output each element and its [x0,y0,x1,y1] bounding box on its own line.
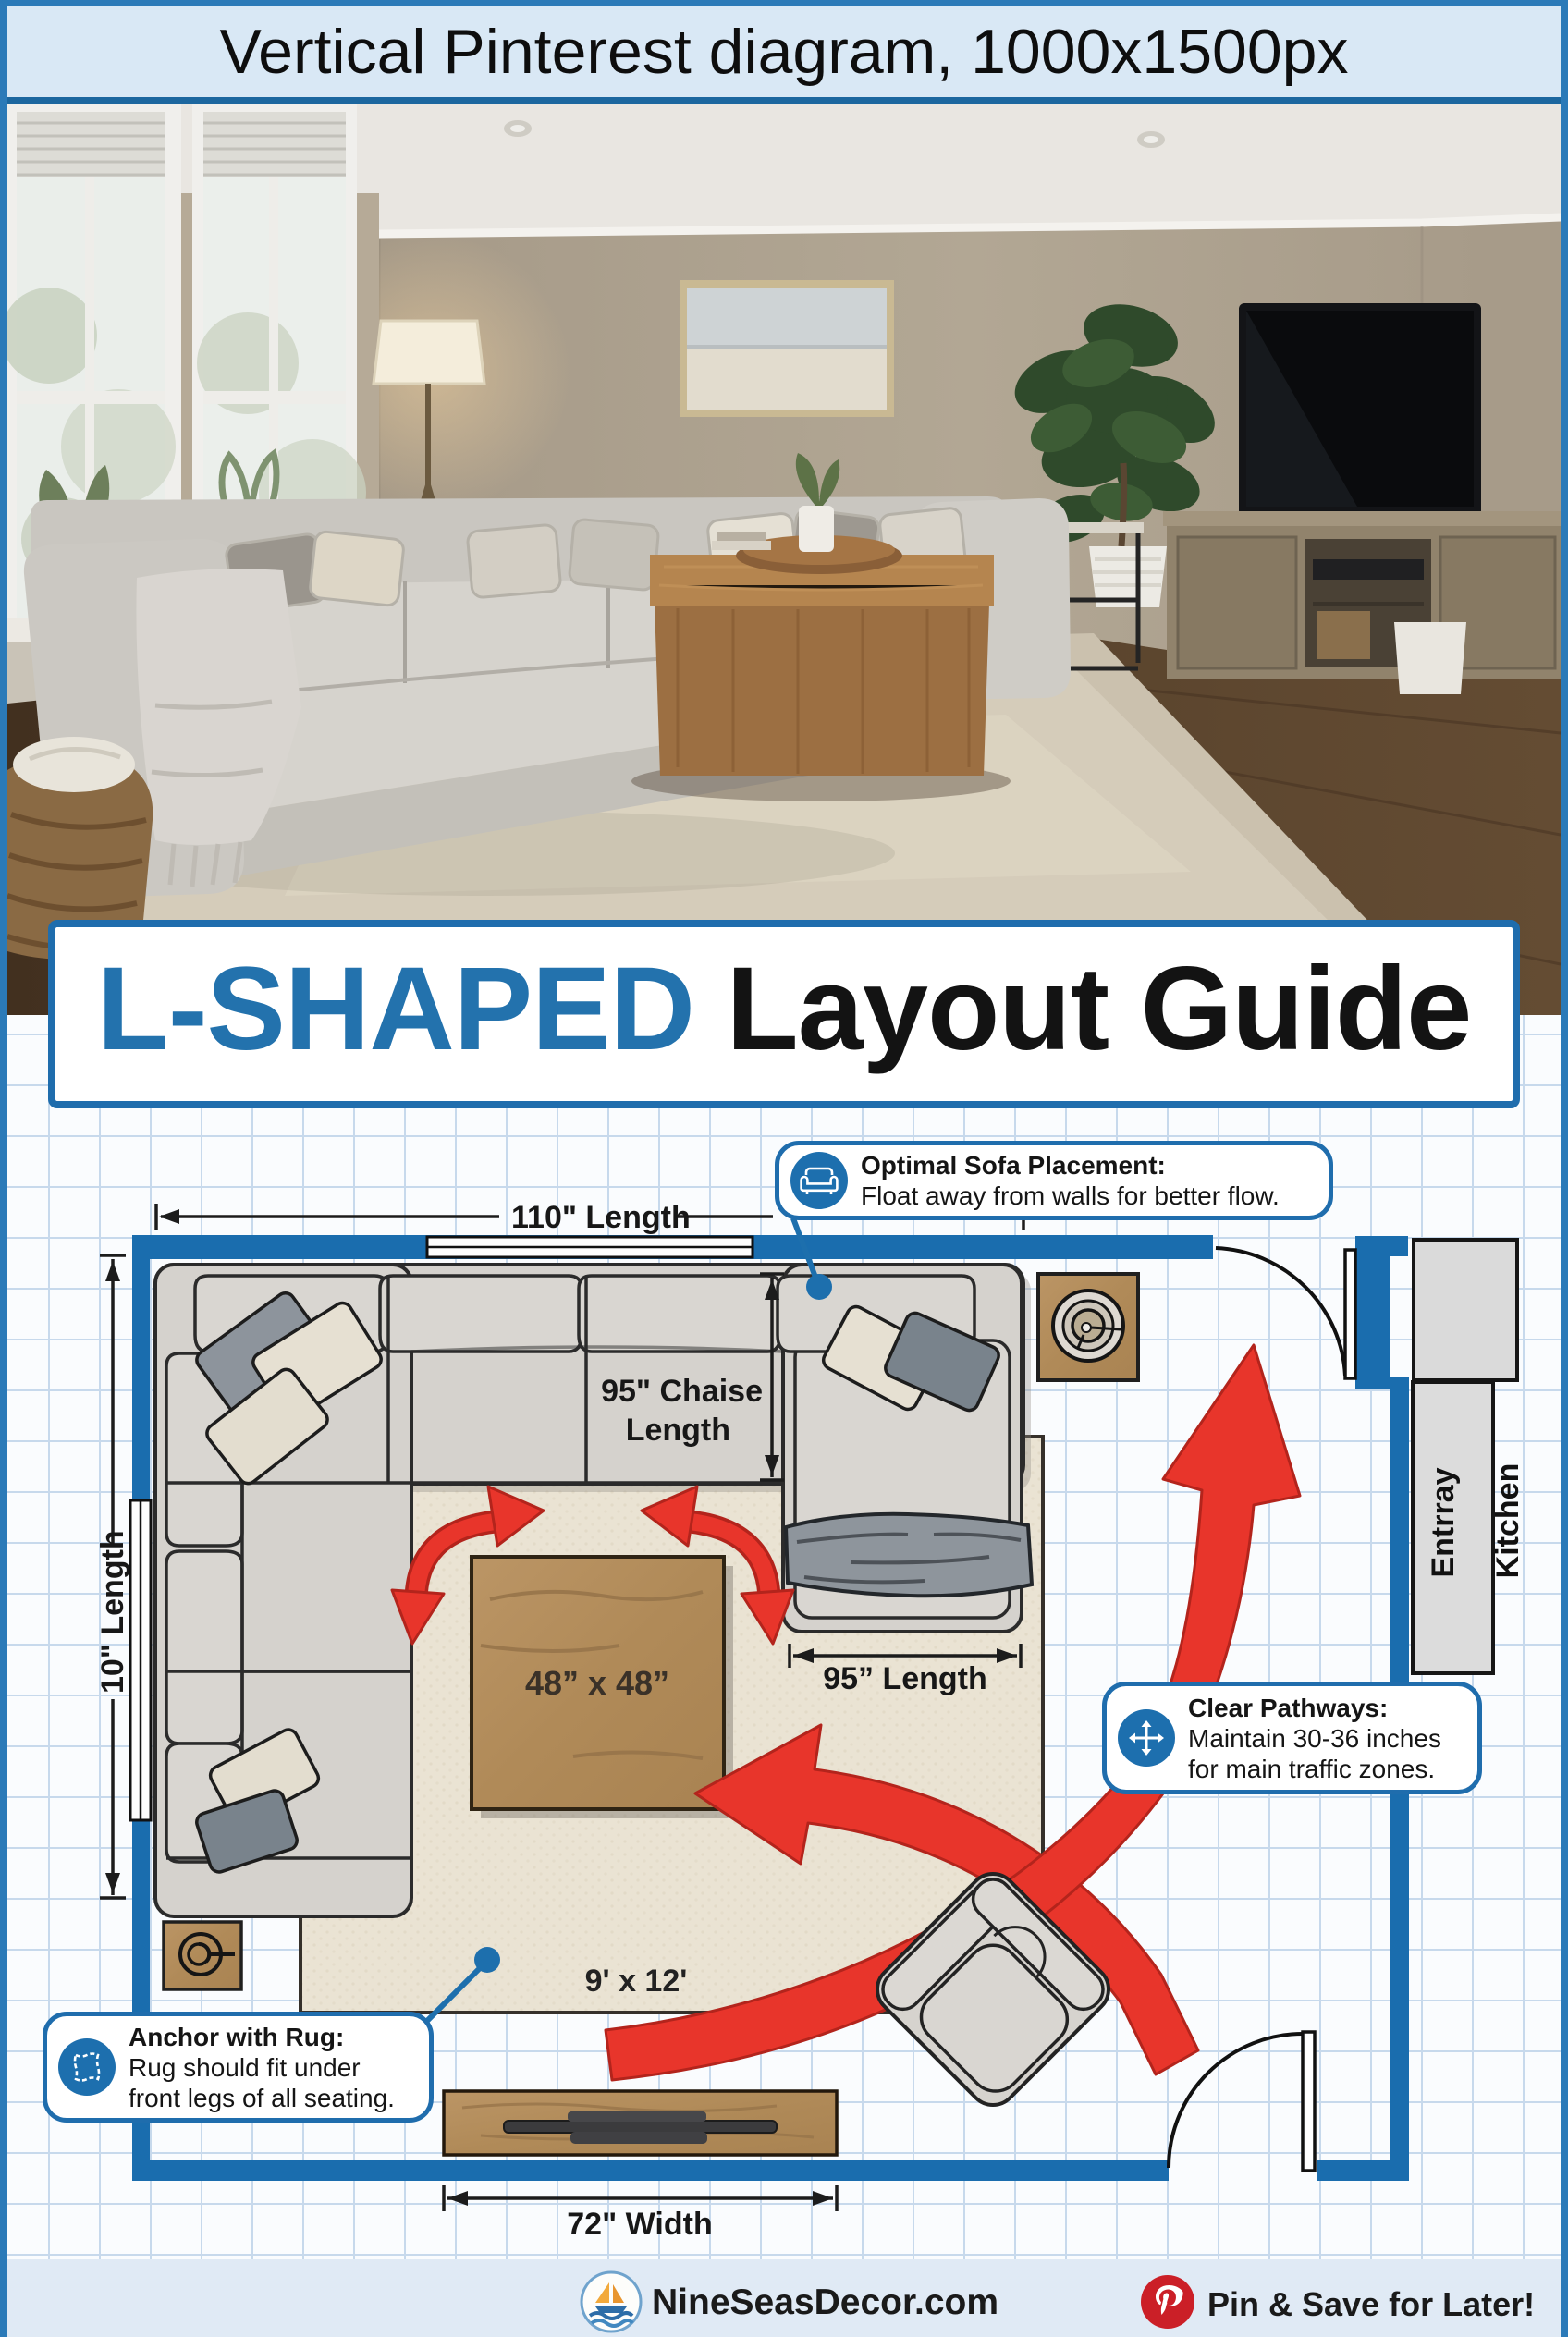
svg-text:48” x 48”: 48” x 48” [525,1664,669,1702]
svg-text:Length: Length [626,1413,730,1448]
svg-text:10" Length: 10" Length [95,1530,130,1694]
svg-text:72" Width: 72" Width [567,2207,712,2242]
svg-text:95” Length: 95” Length [823,1661,987,1696]
svg-text:110" Length: 110" Length [511,1200,691,1235]
svg-text:95" Chaise: 95" Chaise [601,1374,763,1409]
svg-text:9' x 12': 9' x 12' [585,1964,688,1999]
